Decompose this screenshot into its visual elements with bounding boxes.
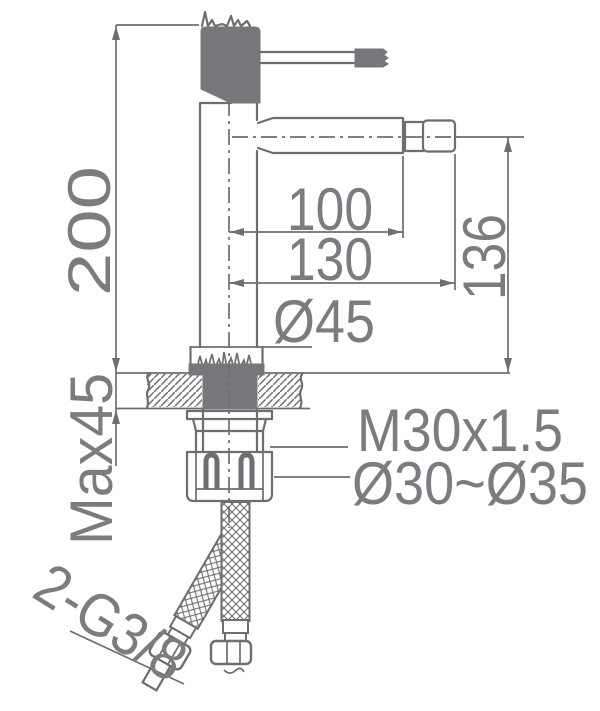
dimension-labels: 200 Max45 100 130 Ø45 136 M30x1.5 Ø30~Ø3… [23, 166, 588, 694]
arrowhead [504, 138, 512, 152]
faucet-spout [258, 118, 403, 153]
label-hole-diameter-range: Ø30~Ø35 [352, 450, 588, 517]
arrowhead [388, 228, 402, 236]
faucet-handle [201, 27, 260, 103]
arrowhead [112, 26, 120, 40]
hose-collar-vertical [223, 620, 248, 633]
faucet-dimension-drawing: 200 Max45 100 130 Ø45 136 M30x1.5 Ø30~Ø3… [0, 0, 600, 711]
arrowhead [112, 358, 120, 372]
handle-break-spikes [202, 12, 250, 26]
label-supply-connection: 2-G3/8 [23, 550, 198, 694]
label-base-diameter: Ø45 [273, 288, 375, 355]
arrowhead [230, 228, 244, 236]
nut-slot-left [206, 455, 217, 489]
hose-hex-nut-vertical [211, 641, 251, 664]
deck-hatch-left [147, 374, 202, 407]
label-total-reach: 130 [287, 226, 373, 293]
hose-break-squiggle [224, 668, 244, 673]
deck-break-edge-right [300, 373, 303, 408]
lever-end [355, 49, 388, 67]
deck-hatch-right [258, 374, 301, 407]
arrowhead [504, 358, 512, 372]
technical-drawing-canvas: 200 Max45 100 130 Ø45 136 M30x1.5 Ø30~Ø3… [0, 0, 600, 711]
label-max-deck-thickness: Max45 [58, 373, 125, 545]
nut-slot-right [241, 455, 252, 489]
aerator-cap [423, 121, 455, 152]
faucet-lever [260, 52, 355, 63]
shank-through-deck [203, 373, 257, 409]
label-total-height: 200 [56, 166, 123, 296]
hose-braid-vertical [222, 502, 250, 621]
label-spout-height: 136 [451, 214, 518, 300]
arrowhead [230, 279, 244, 287]
